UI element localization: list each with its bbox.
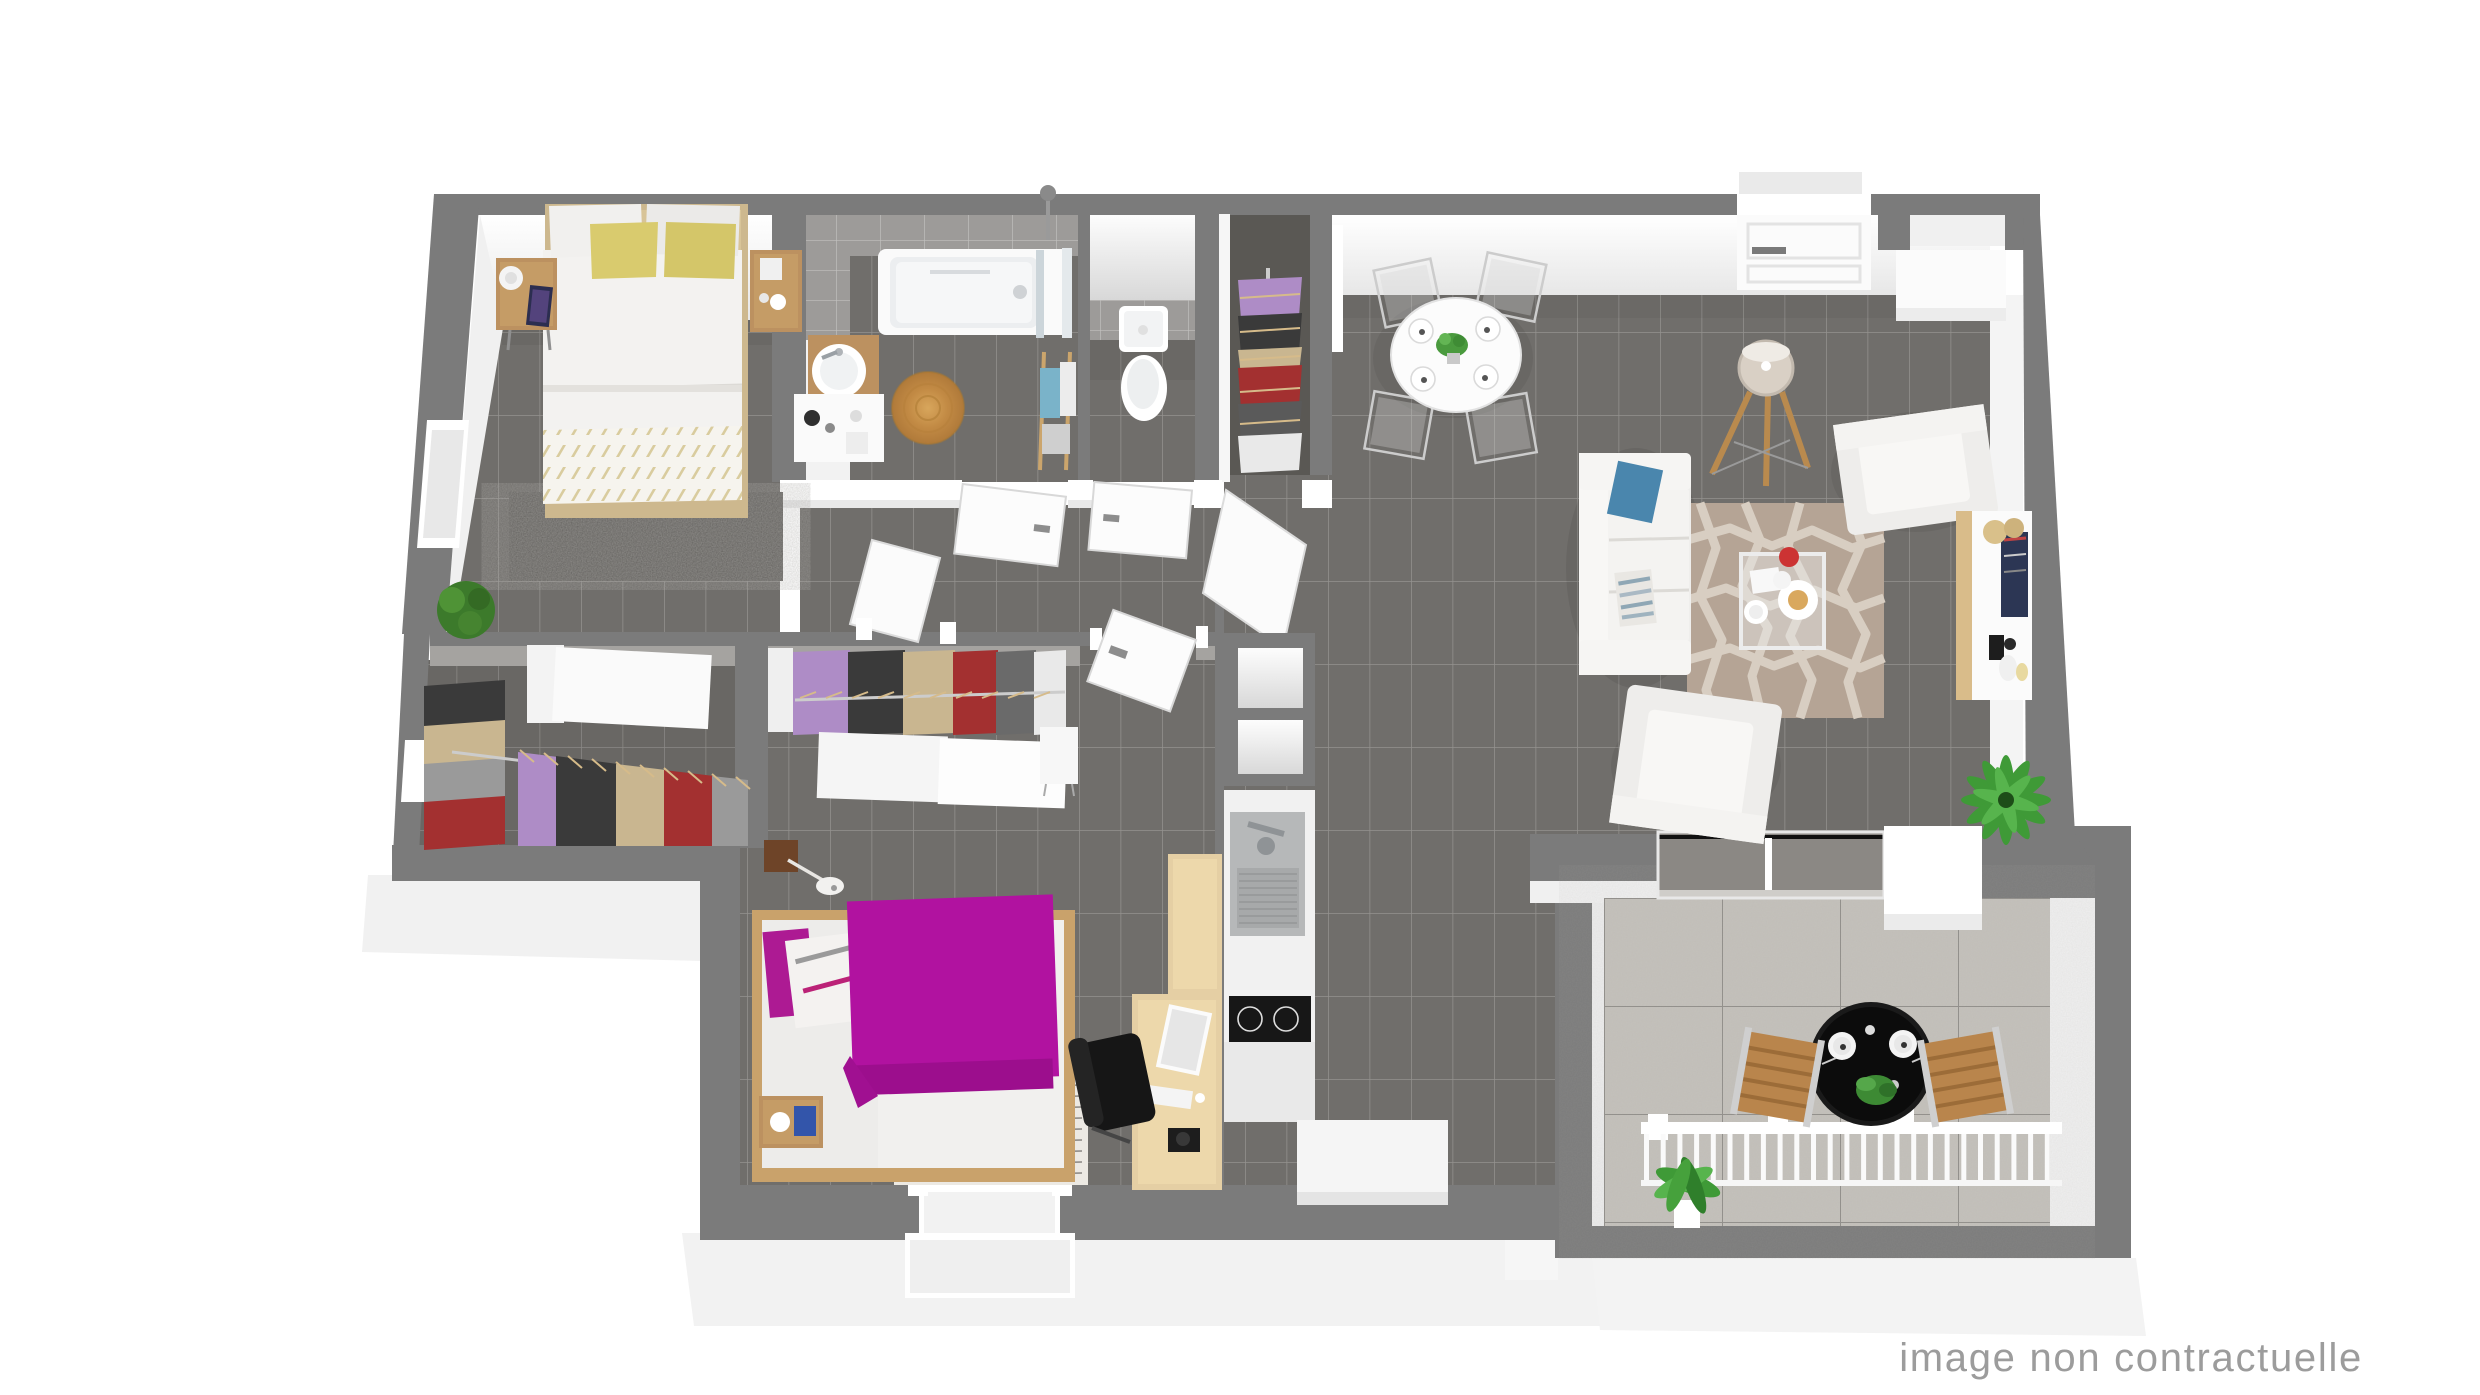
svg-text:image non contractuelle: image non contractuelle [1899,1336,2363,1380]
